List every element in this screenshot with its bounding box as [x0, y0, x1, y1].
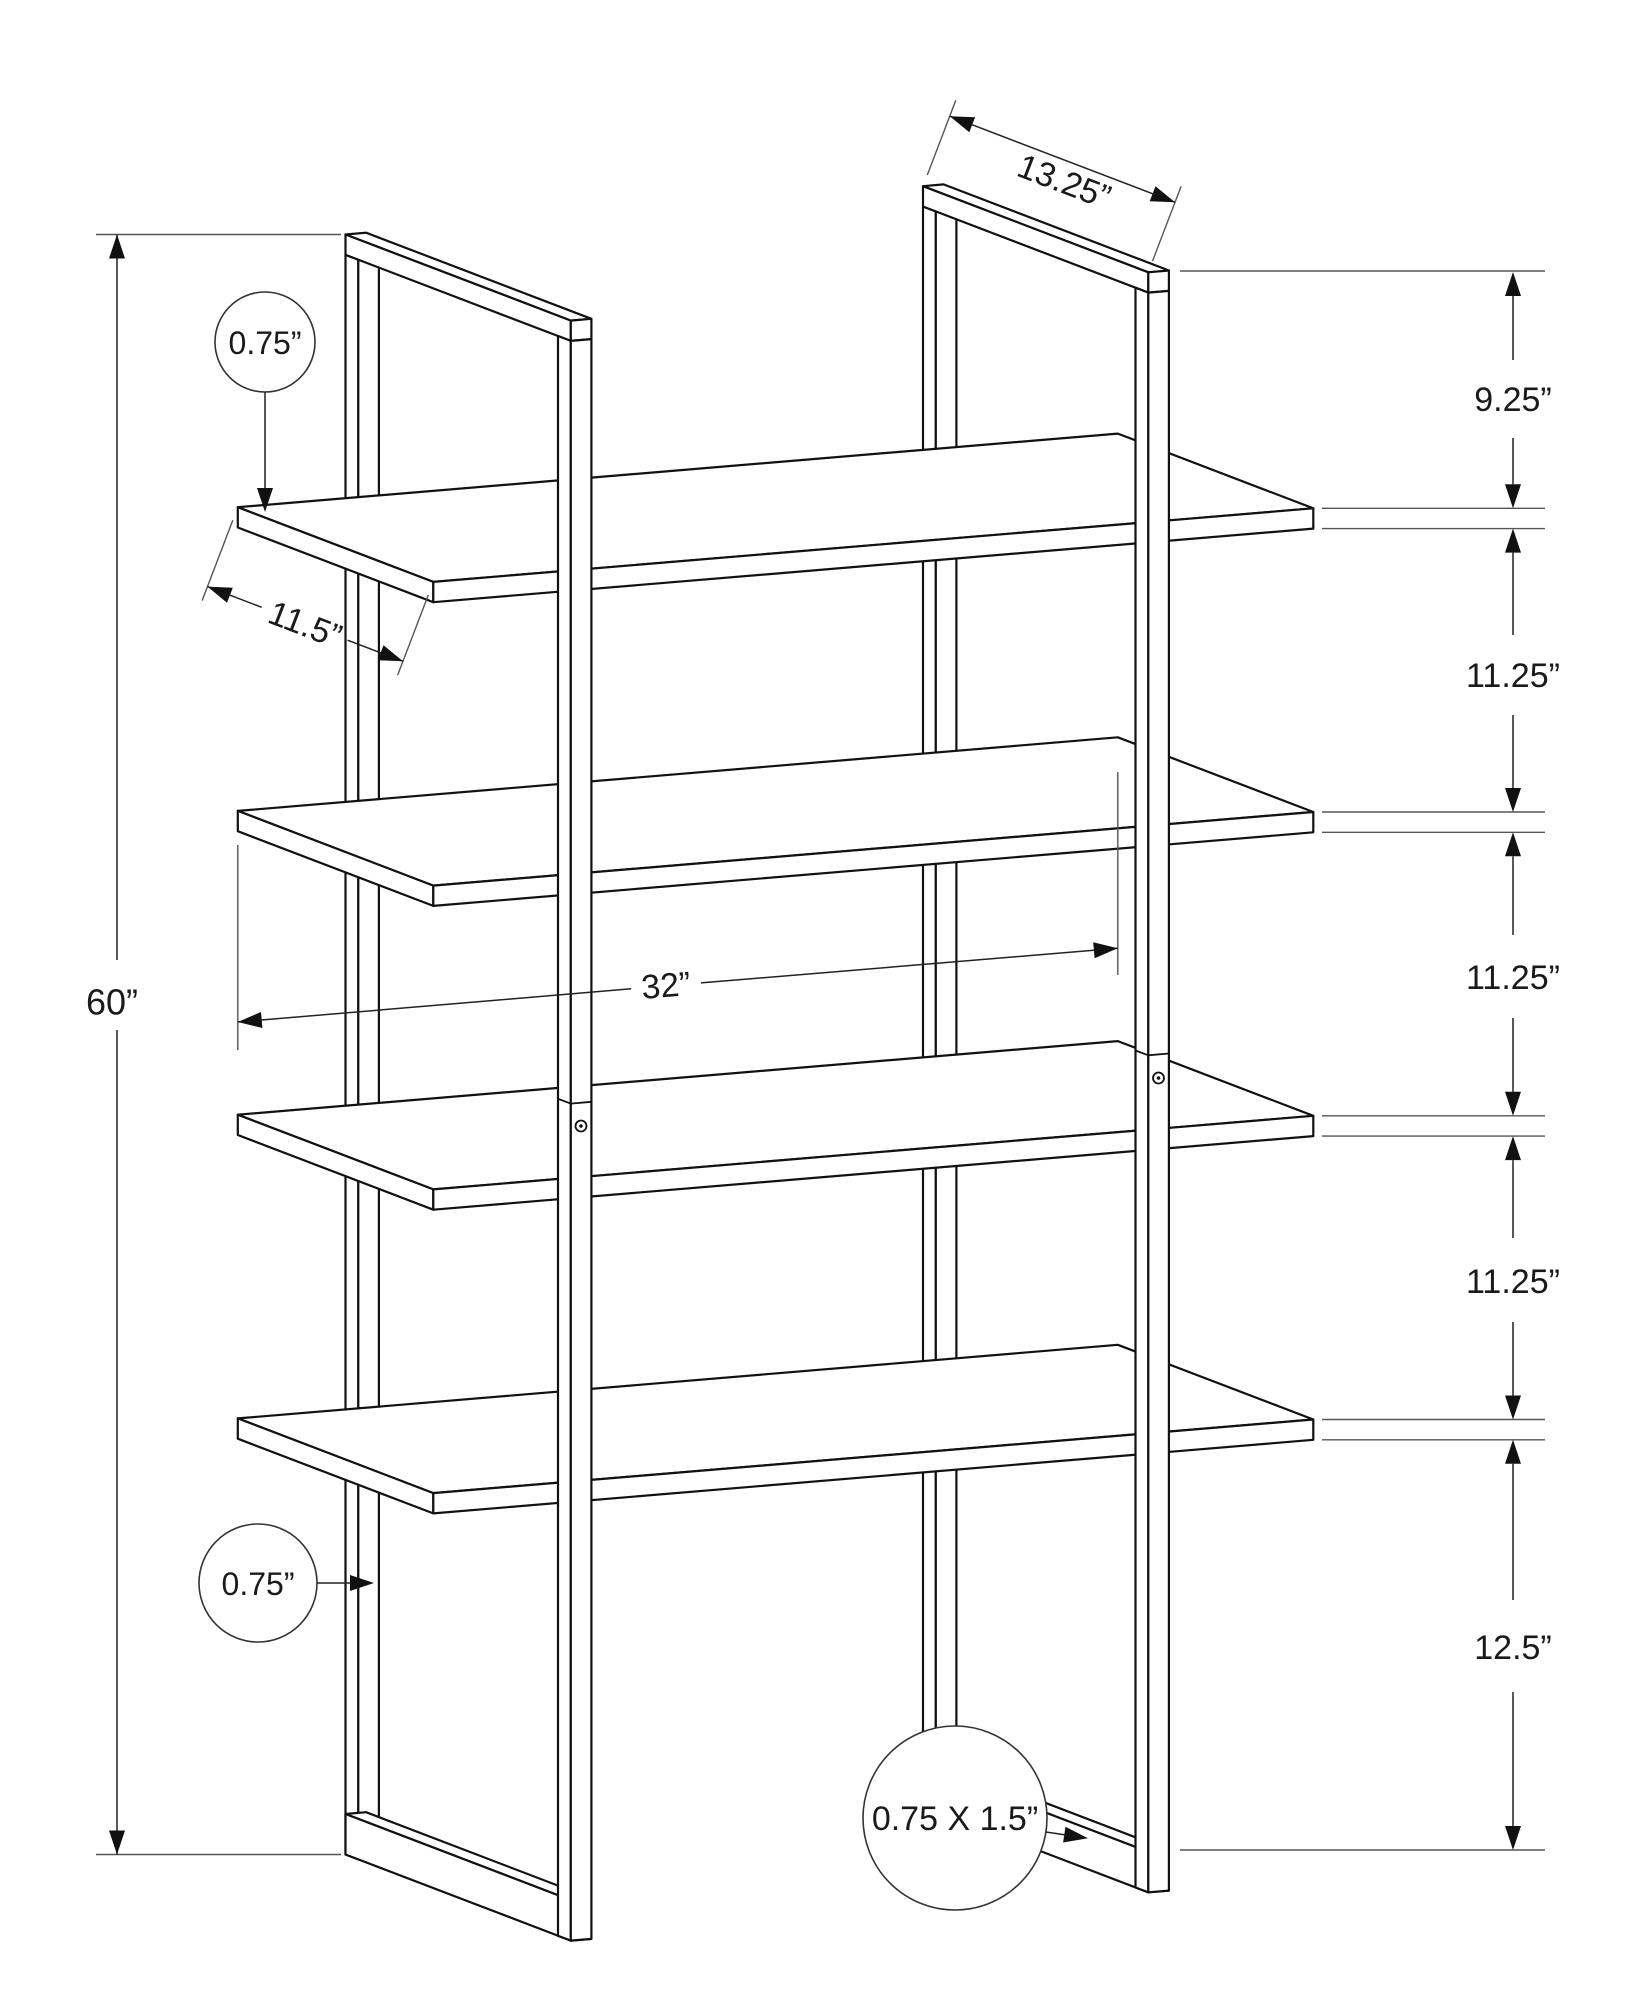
base-rail-label: 0.75 X 1.5” [872, 1800, 1038, 1838]
gap3-label: 11.25” [1466, 1263, 1560, 1301]
shelf-width-label: 32” [640, 965, 692, 1007]
shelf-thickness-label: 0.75” [229, 325, 302, 361]
right-frame-top-rail [923, 184, 1169, 292]
left-frame-bottom-rail [346, 1812, 592, 1940]
left-frame-front-post [558, 336, 591, 1941]
callout-shelf-thickness: 0.75” [215, 292, 315, 512]
frame-depth-label: 13.25” [1012, 147, 1116, 217]
furniture-dimension-diagram: 60” 13.25” 9.25” 11.25” 11.25” [0, 0, 1648, 2000]
bottom-gap-label: 12.5” [1474, 1629, 1552, 1667]
right-frame-front-post [1136, 288, 1169, 1893]
gap2-label: 11.25” [1466, 959, 1560, 997]
left-frame-top-rail [346, 233, 592, 341]
shelf-depth-label: 11.5” [263, 594, 347, 656]
diagram-canvas: 60” 13.25” 9.25” 11.25” 11.25” [0, 0, 1648, 2000]
post-size-label: 0.75” [222, 1566, 295, 1602]
top-gap-label: 9.25” [1474, 381, 1552, 419]
total-height-label: 60” [86, 982, 138, 1023]
gap1-label: 11.25” [1466, 657, 1560, 695]
